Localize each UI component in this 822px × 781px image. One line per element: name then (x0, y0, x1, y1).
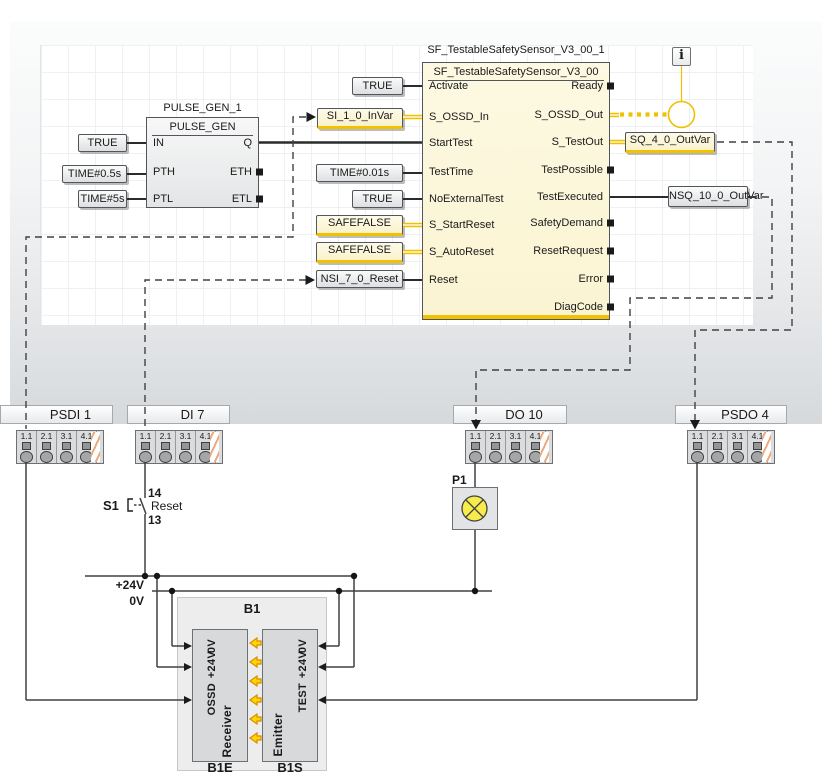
literal-time-pth[interactable]: TIME#0.5s (62, 165, 127, 183)
pin-ready: Ready (571, 80, 603, 92)
pulse-gen-block[interactable]: PULSE_GEN IN PTH PTL Q ETH ETL (146, 117, 259, 208)
terminal-label-do10: DO 10 (453, 405, 567, 424)
invar-si-1-0[interactable]: SI_1_0_InVar (317, 108, 403, 129)
contact-14-label: 14 (148, 486, 161, 500)
diagram-stage: PULSE_GEN_1 PULSE_GEN IN PTH PTL Q ETH E… (0, 0, 822, 781)
pin-testexecuted: TestExecuted (537, 191, 603, 203)
reset-switch-label: S1 (103, 498, 119, 513)
pin-testtime: TestTime (429, 166, 473, 178)
terminal-stripe (91, 432, 100, 462)
terminal-cell[interactable]: 1.1 (136, 431, 156, 463)
terminal-stripe (762, 432, 771, 462)
pin-resetrequest: ResetRequest (533, 245, 603, 257)
pin-s-startreset: S_StartReset (429, 219, 494, 231)
pin-in: IN (153, 137, 164, 149)
terminal-cell[interactable]: 1.1 (466, 431, 486, 463)
terminal-cell[interactable]: 3.1 (57, 431, 77, 463)
emitter-pin-24v: +24V (297, 651, 309, 678)
info-icon[interactable]: i (672, 47, 691, 66)
pin-diagcode: DiagCode (554, 301, 603, 313)
outvar-nsq-10-0[interactable]: NSQ_10_0_OutVar (668, 186, 748, 207)
safety-block-type-label: SF_TestableSafetySensor_V3_00 (428, 63, 604, 81)
pin-s-ossd-in: S_OSSD_In (429, 111, 489, 123)
terminal-stripe (210, 432, 219, 462)
terminal-strip-do10: 1.1 2.1 3.1 4.1 (465, 430, 553, 464)
outvar-sq-4-0[interactable]: SQ_4_0_OutVar (625, 132, 715, 153)
pin-ptl: PTL (153, 193, 173, 205)
pin-s-autoreset: S_AutoReset (429, 246, 494, 258)
pin-reset: Reset (429, 274, 458, 286)
lamp-label: P1 (452, 473, 467, 487)
terminal-label-di7: DI 7 (127, 405, 230, 424)
terminal-cell[interactable]: 3.1 (506, 431, 526, 463)
terminal-cell[interactable]: 2.1 (156, 431, 176, 463)
terminal-stripe (540, 432, 549, 462)
safety-block[interactable]: SF_TestableSafetySensor_V3_00 Activate S… (422, 62, 610, 320)
terminal-label-psdi1: PSDI 1 (0, 405, 113, 424)
pin-s-testout: S_TestOut (552, 136, 603, 148)
literal-time-ptl[interactable]: TIME#5s (78, 190, 127, 208)
terminal-strip-psdi1: 1.1 2.1 3.1 4.1 (16, 430, 104, 464)
terminal-cell[interactable]: 1.1 (688, 431, 708, 463)
p24v-label: +24V (100, 578, 144, 592)
pulse-gen-instance-title: PULSE_GEN_1 (146, 102, 259, 114)
terminal-cell[interactable]: 1.1 (17, 431, 37, 463)
lamp-symbol-box (452, 487, 498, 530)
invar-nsi-7-0-reset[interactable]: NSI_7_0_Reset (316, 270, 403, 288)
receiver-pin-24v: +24V (206, 651, 218, 678)
emitter-label: Emitter (271, 713, 285, 756)
terminal-cell[interactable]: 2.1 (37, 431, 57, 463)
pin-s-ossd-out: S_OSSD_Out (535, 109, 603, 121)
literal-time-testtime[interactable]: TIME#0.01s (316, 164, 403, 182)
literal-true-noexternaltest[interactable]: TRUE (352, 190, 403, 208)
terminal-cell[interactable]: 3.1 (176, 431, 196, 463)
safety-block-bottom-bar (423, 315, 609, 319)
safety-block-instance-title: SF_TestableSafetySensor_V3_00_1 (422, 44, 610, 56)
pin-starttest: StartTest (429, 137, 472, 149)
zero-v-label: 0V (100, 594, 144, 608)
reset-switch-symbol (128, 499, 141, 511)
junction-dots (142, 573, 478, 594)
terminal-strip-di7: 1.1 2.1 3.1 4.1 (135, 430, 223, 464)
contact-13-label: 13 (148, 513, 161, 527)
pin-error: Error (579, 273, 603, 285)
pin-noexternaltest: NoExternalTest (429, 193, 504, 205)
pin-q: Q (243, 137, 252, 149)
info-icon-glyph: i (679, 48, 684, 63)
emitter-tag: B1S (262, 760, 318, 775)
literal-safefalse-autoreset[interactable]: SAFEFALSE (316, 242, 403, 263)
literal-true-activate[interactable]: TRUE (352, 77, 403, 95)
pin-testpossible: TestPossible (541, 164, 603, 176)
literal-safefalse-startreset[interactable]: SAFEFALSE (316, 215, 403, 236)
pin-eth: ETH (230, 166, 252, 178)
terminal-cell[interactable]: 2.1 (708, 431, 728, 463)
receiver-label: Receiver (220, 705, 234, 757)
pin-etl: ETL (232, 193, 252, 205)
literal-true-in[interactable]: TRUE (78, 134, 127, 152)
pin-safetydemand: SafetyDemand (530, 217, 603, 229)
receiver-tag: B1E (192, 760, 248, 775)
reset-function-label: Reset (151, 499, 182, 513)
pulse-gen-type-label: PULSE_GEN (152, 118, 253, 136)
terminal-strip-psdo4: 1.1 2.1 3.1 4.1 (687, 430, 775, 464)
receiver-pin-ossd: OSSD (206, 683, 218, 715)
sensor-b1-label: B1 (178, 598, 326, 616)
pin-activate: Activate (429, 80, 468, 92)
terminal-label-psdo4: PSDO 4 (675, 405, 787, 424)
emitter-pin-test: TEST (297, 683, 309, 712)
terminal-cell[interactable]: 3.1 (728, 431, 748, 463)
pin-pth: PTH (153, 166, 175, 178)
terminal-cell[interactable]: 2.1 (486, 431, 506, 463)
